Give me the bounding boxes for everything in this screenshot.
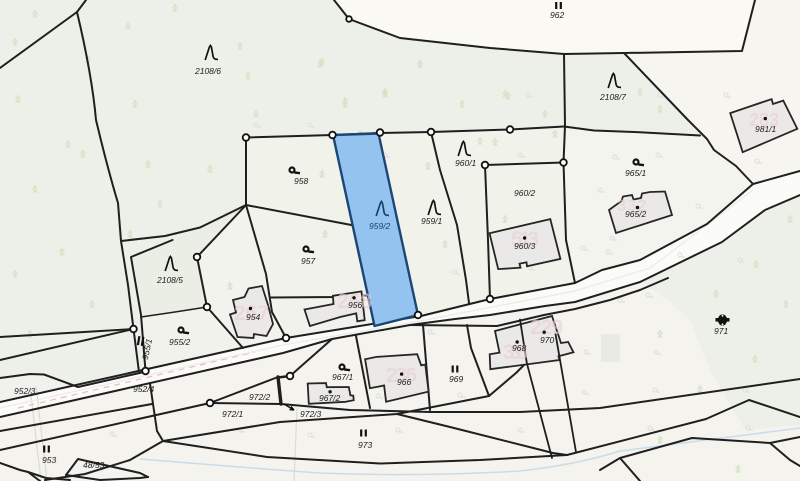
svg-text:967/2: 967/2	[319, 393, 341, 403]
svg-text:970: 970	[540, 335, 554, 345]
svg-text:965/2: 965/2	[625, 209, 647, 219]
svg-text:960/1: 960/1	[455, 158, 477, 168]
svg-text:959/1: 959/1	[421, 216, 443, 226]
svg-text:959/2: 959/2	[369, 221, 391, 231]
svg-text:962: 962	[550, 10, 564, 20]
svg-text:972/2: 972/2	[249, 392, 271, 402]
svg-text:972/3: 972/3	[300, 409, 322, 419]
svg-text:965/1: 965/1	[625, 168, 647, 178]
svg-text:2108/6: 2108/6	[194, 66, 221, 76]
svg-text:960/3: 960/3	[514, 241, 536, 251]
svg-text:955/2: 955/2	[169, 337, 191, 347]
svg-text:960/2: 960/2	[514, 188, 536, 198]
svg-text:2108/7: 2108/7	[599, 92, 626, 102]
svg-text:952/4: 952/4	[133, 384, 155, 394]
svg-text:954: 954	[246, 312, 260, 322]
svg-text:48/53: 48/53	[83, 460, 105, 470]
svg-text:971: 971	[714, 326, 728, 336]
svg-text:953: 953	[42, 455, 56, 465]
svg-text:972/1: 972/1	[222, 409, 244, 419]
svg-text:952/3: 952/3	[14, 386, 36, 396]
svg-text:958: 958	[294, 176, 308, 186]
svg-text:2108/5: 2108/5	[156, 275, 183, 285]
svg-text:967/1: 967/1	[332, 372, 354, 382]
svg-text:968: 968	[512, 343, 526, 353]
svg-text:957: 957	[301, 256, 315, 266]
svg-text:973: 973	[358, 440, 372, 450]
svg-text:966: 966	[397, 377, 411, 387]
svg-text:981/1: 981/1	[755, 124, 777, 134]
svg-text:969: 969	[449, 374, 463, 384]
svg-text:956: 956	[348, 300, 362, 310]
